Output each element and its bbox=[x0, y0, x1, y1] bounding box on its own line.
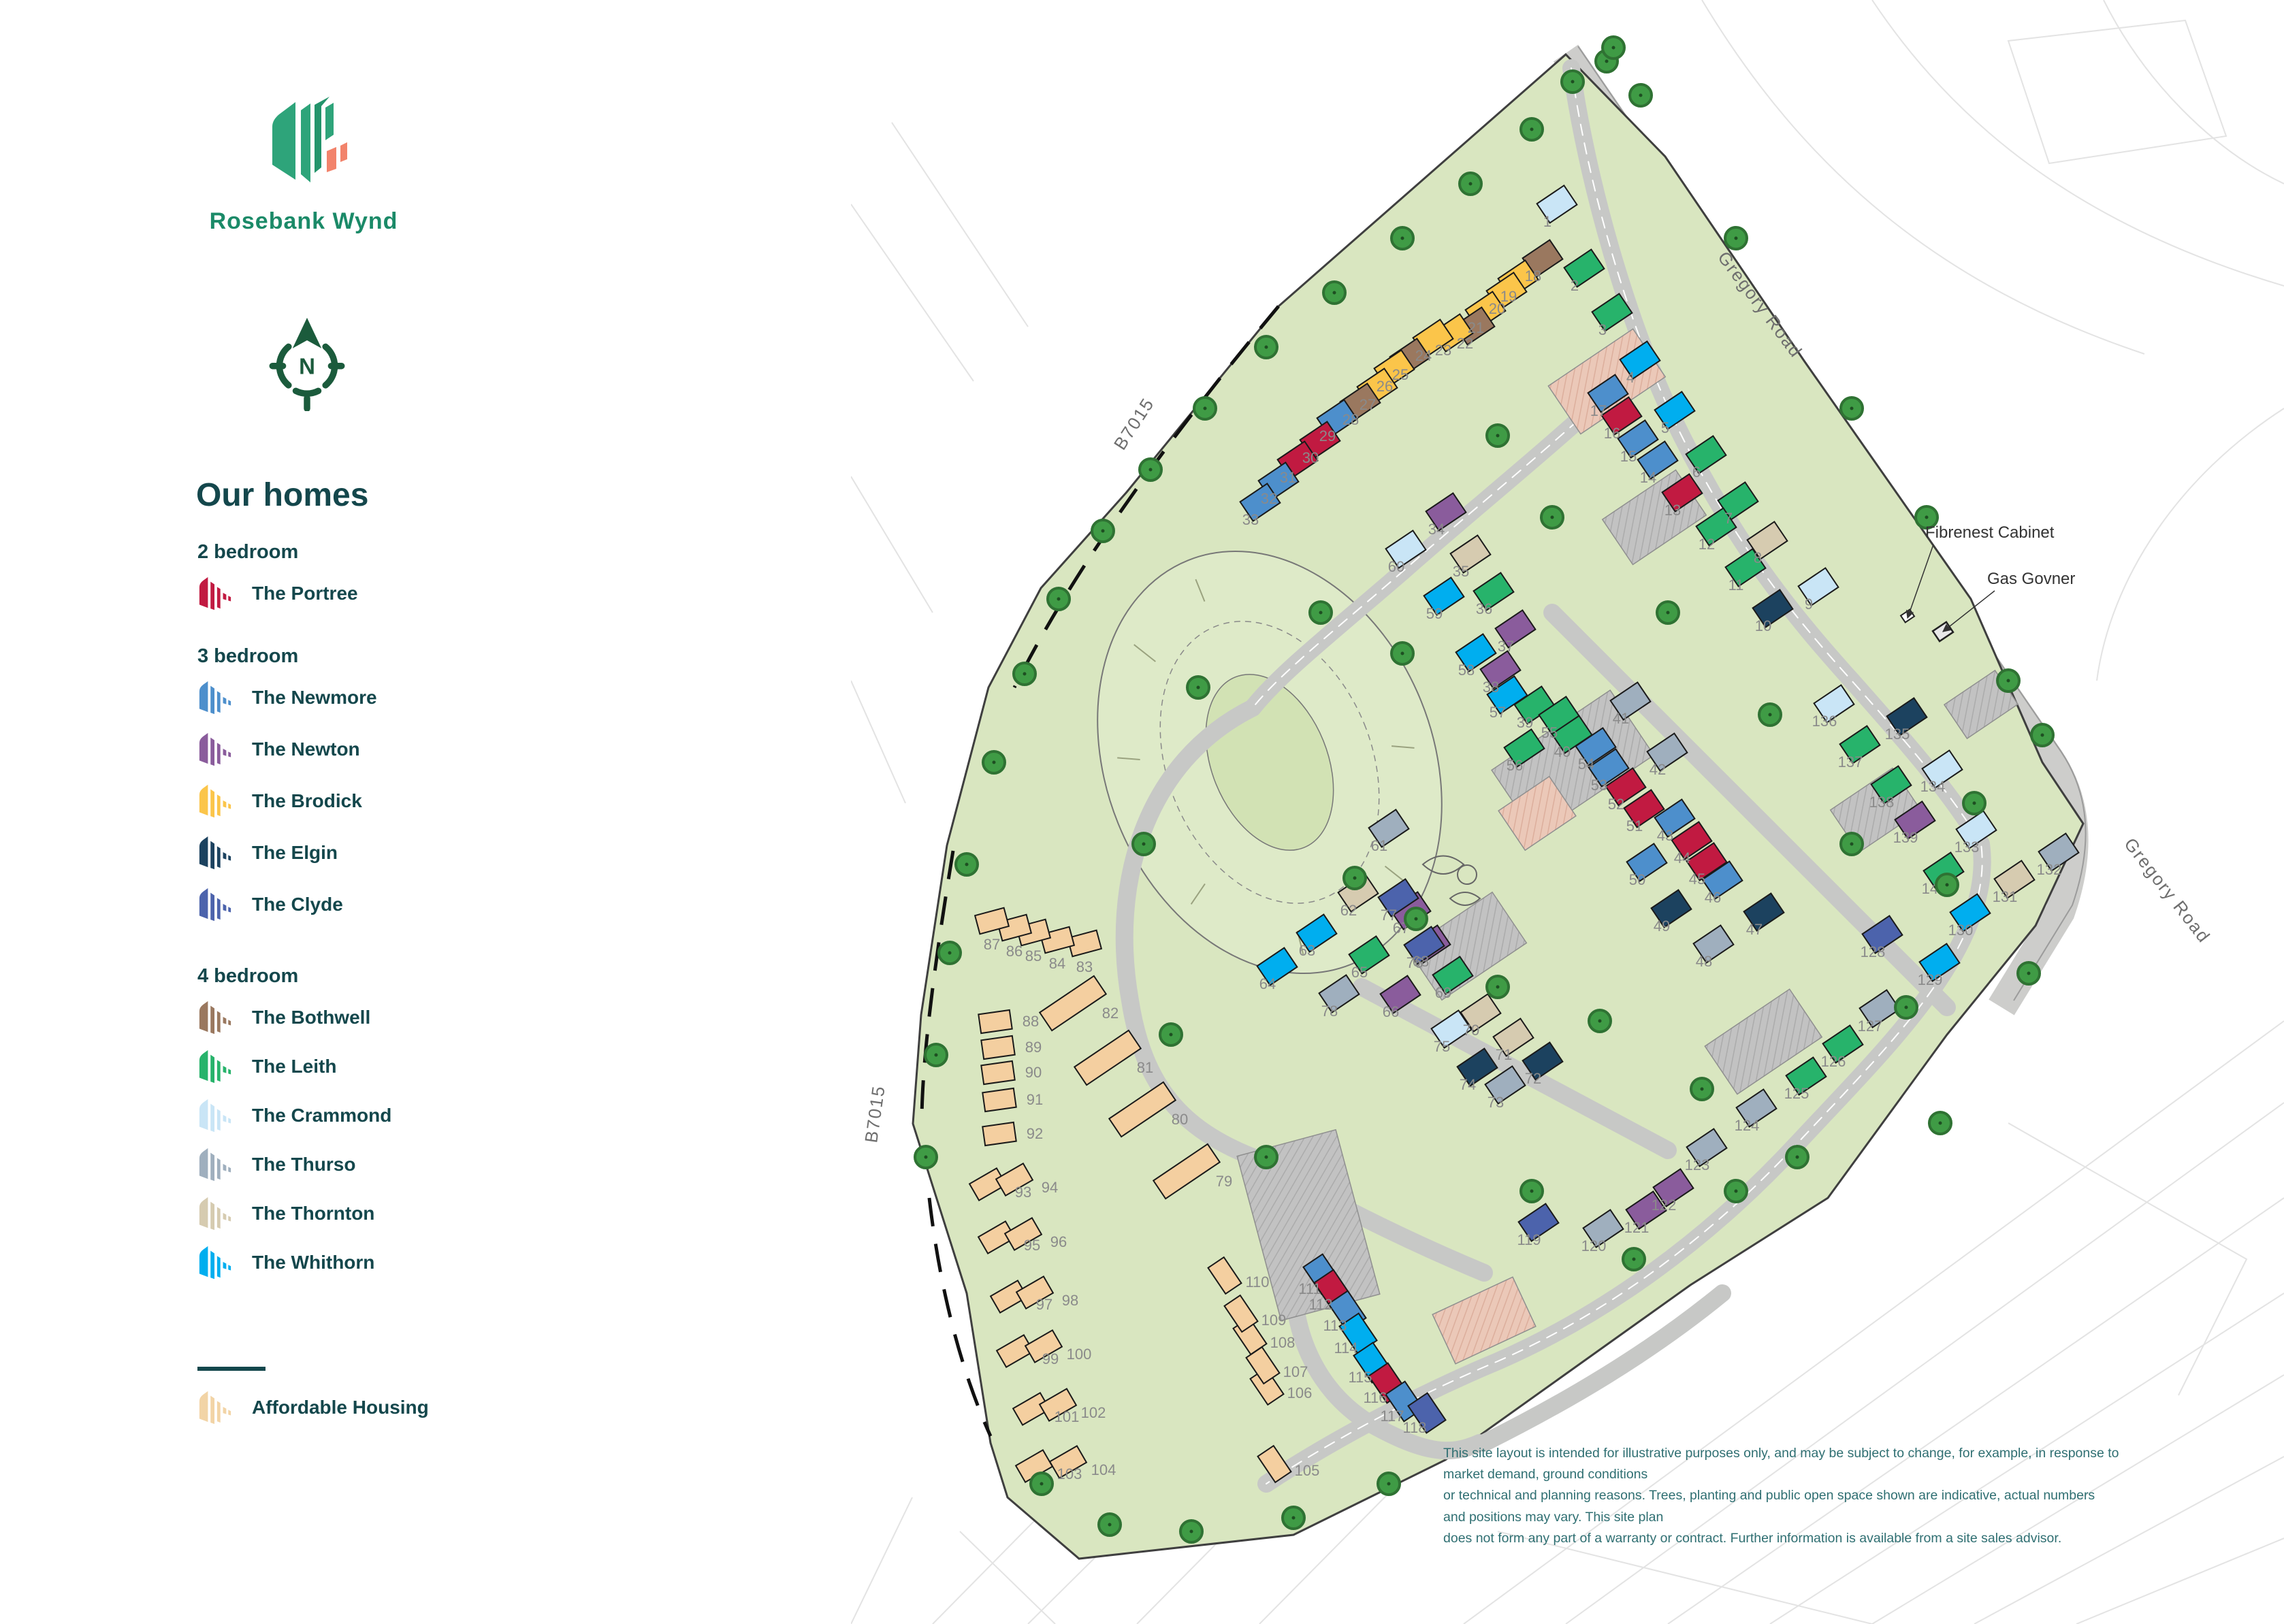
plot-number-75: 75 bbox=[1434, 1038, 1450, 1055]
disclaimer-line: or technical and planning reasons. Trees… bbox=[1443, 1485, 2121, 1527]
plot-number-117: 117 bbox=[1380, 1408, 1404, 1425]
tree-icon bbox=[1589, 1010, 1611, 1032]
plot-number-77: 77 bbox=[1381, 907, 1397, 924]
plot-number-66: 66 bbox=[1383, 1003, 1399, 1020]
legend-item-label: The Elgin bbox=[252, 842, 338, 864]
legend-item-label: The Thornton bbox=[252, 1203, 374, 1224]
road-label-b7015: B7015 bbox=[860, 1084, 889, 1144]
house-marker-plot-88[interactable] bbox=[978, 1010, 1012, 1033]
plot-number-39: 39 bbox=[1517, 714, 1533, 731]
plot-number-16: 16 bbox=[1604, 425, 1620, 442]
house-type-icon bbox=[197, 732, 233, 767]
plot-number-47: 47 bbox=[1746, 921, 1763, 938]
plot-number-43: 43 bbox=[1657, 827, 1673, 844]
house-type-icon bbox=[197, 1390, 233, 1425]
plot-number-110: 110 bbox=[1245, 1273, 1269, 1290]
legend-item-the-clyde: The Clyde bbox=[197, 887, 377, 922]
tree-icon bbox=[1936, 874, 1958, 896]
legend-item-the-bothwell: The Bothwell bbox=[197, 1000, 391, 1035]
bedroom-heading: 4 bedroom bbox=[197, 965, 391, 988]
plot-number-136: 136 bbox=[1812, 713, 1837, 730]
plot-number-9: 9 bbox=[1805, 596, 1813, 613]
road-label-b7015: B7015 bbox=[1110, 393, 1159, 453]
plot-number-109: 109 bbox=[1261, 1312, 1287, 1329]
plot-number-121: 121 bbox=[1624, 1219, 1650, 1236]
plot-number-98: 98 bbox=[1062, 1292, 1078, 1309]
plot-number-93: 93 bbox=[1015, 1184, 1031, 1201]
tree-icon bbox=[1521, 1180, 1543, 1202]
tree-icon bbox=[1541, 506, 1563, 528]
tree-icon bbox=[1405, 908, 1427, 930]
plot-number-22: 22 bbox=[1457, 335, 1473, 352]
plot-number-78: 78 bbox=[1321, 1003, 1338, 1020]
plot-number-86: 86 bbox=[1006, 943, 1023, 960]
tree-icon bbox=[1344, 867, 1366, 889]
plot-number-35: 35 bbox=[1453, 563, 1469, 580]
tree-icon bbox=[1099, 1514, 1121, 1536]
plot-number-37: 37 bbox=[1498, 638, 1514, 655]
plot-number-7: 7 bbox=[1724, 510, 1733, 527]
plot-number-33: 33 bbox=[1242, 511, 1259, 528]
legend-item-label: The Newmore bbox=[252, 687, 377, 709]
legend-item-the-newmore: The Newmore bbox=[197, 680, 377, 715]
house-type-icon bbox=[197, 576, 233, 611]
plot-number-114: 114 bbox=[1334, 1339, 1357, 1357]
plot-number-41: 41 bbox=[1613, 710, 1629, 727]
legend-item-the-crammond: The Crammond bbox=[197, 1098, 391, 1133]
plot-number-10: 10 bbox=[1755, 617, 1771, 634]
legend-item-label: Affordable Housing bbox=[252, 1397, 429, 1418]
plot-number-104: 104 bbox=[1091, 1461, 1116, 1478]
tree-icon bbox=[983, 751, 1005, 773]
legend-section-3-bedroom: 3 bedroom The NewmoreThe NewtonThe Brodi… bbox=[197, 645, 377, 922]
plot-number-60: 60 bbox=[1388, 558, 1404, 575]
tree-icon bbox=[1603, 37, 1624, 59]
plot-number-30: 30 bbox=[1302, 449, 1319, 466]
tree-icon bbox=[1487, 425, 1509, 446]
plot-number-1: 1 bbox=[1543, 213, 1551, 230]
legend-item-affordable-housing: Affordable Housing bbox=[197, 1390, 429, 1425]
legend-item-label: The Newton bbox=[252, 738, 360, 760]
brand-title: Rosebank Wynd bbox=[95, 208, 512, 235]
bedroom-heading: 2 bedroom bbox=[197, 541, 358, 564]
plot-number-26: 26 bbox=[1377, 378, 1393, 395]
compass-icon: N bbox=[267, 314, 347, 411]
tree-icon bbox=[1963, 792, 1985, 814]
bedroom-heading: 3 bedroom bbox=[197, 645, 377, 668]
plot-number-34: 34 bbox=[1428, 521, 1445, 538]
house-type-icon bbox=[197, 1000, 233, 1035]
plot-number-103: 103 bbox=[1057, 1465, 1082, 1482]
tree-icon bbox=[1283, 1507, 1304, 1529]
tree-icon bbox=[2018, 962, 2040, 984]
plot-number-83: 83 bbox=[1076, 958, 1093, 975]
plot-number-51: 51 bbox=[1626, 817, 1643, 834]
plot-number-29: 29 bbox=[1319, 427, 1336, 444]
legend-item-affordable-housing: Affordable Housing bbox=[197, 1390, 429, 1425]
plot-number-74: 74 bbox=[1460, 1076, 1476, 1093]
plot-number-112: 112 bbox=[1308, 1296, 1332, 1313]
plot-number-18: 18 bbox=[1525, 267, 1541, 285]
plot-number-95: 95 bbox=[1024, 1237, 1040, 1254]
plot-number-105: 105 bbox=[1295, 1462, 1320, 1479]
plot-number-84: 84 bbox=[1049, 955, 1065, 972]
plot-number-139: 139 bbox=[1893, 829, 1918, 846]
legend-item-label: The Crammond bbox=[252, 1105, 391, 1126]
plot-number-56: 56 bbox=[1507, 757, 1523, 774]
plot-number-131: 131 bbox=[1993, 888, 2018, 905]
tree-icon bbox=[1630, 84, 1652, 106]
plot-number-31: 31 bbox=[1280, 469, 1296, 486]
legend-item-label: The Brodick bbox=[252, 790, 362, 812]
plot-number-14: 14 bbox=[1640, 469, 1656, 486]
rosebank-logo-icon bbox=[267, 94, 347, 184]
tree-icon bbox=[1841, 833, 1863, 855]
house-type-icon bbox=[197, 887, 233, 922]
plot-number-101: 101 bbox=[1055, 1408, 1080, 1425]
house-marker-plot-89[interactable] bbox=[981, 1036, 1014, 1059]
site-plan-map[interactable]: 1234567891011121314151617181920212223242… bbox=[851, 0, 2284, 1624]
plot-number-76: 76 bbox=[1406, 954, 1423, 971]
plot-number-58: 58 bbox=[1458, 662, 1475, 679]
legend-section-2-bedroom: 2 bedroom The Portree bbox=[197, 541, 358, 611]
tree-icon bbox=[1048, 588, 1069, 610]
plot-number-8: 8 bbox=[1754, 549, 1762, 566]
tree-icon bbox=[1133, 833, 1155, 855]
tree-icon bbox=[1997, 670, 2019, 692]
tree-icon bbox=[1725, 1180, 1747, 1202]
house-type-icon bbox=[197, 1147, 233, 1182]
house-type-icon bbox=[197, 1098, 233, 1133]
house-type-icon bbox=[197, 1196, 233, 1231]
tree-icon bbox=[1487, 976, 1509, 998]
plot-number-132: 132 bbox=[2037, 861, 2062, 878]
plot-number-107: 107 bbox=[1283, 1363, 1308, 1380]
plot-number-50: 50 bbox=[1629, 871, 1645, 888]
tree-icon bbox=[1140, 459, 1161, 481]
tree-icon bbox=[1014, 663, 1035, 685]
legend-item-the-newton: The Newton bbox=[197, 732, 377, 767]
tree-icon bbox=[2031, 724, 2053, 746]
annotation-gas-govner: Gas Govner bbox=[1987, 570, 2075, 588]
tree-icon bbox=[1392, 643, 1413, 664]
legend-item-the-thurso: The Thurso bbox=[197, 1147, 391, 1182]
tree-icon bbox=[1623, 1248, 1645, 1270]
plot-number-25: 25 bbox=[1392, 366, 1409, 383]
disclaimer-line: This site layout is intended for illustr… bbox=[1443, 1443, 2121, 1485]
legend-item-the-brodick: The Brodick bbox=[197, 783, 377, 819]
plot-number-15: 15 bbox=[1620, 448, 1637, 465]
disclaimer-text: This site layout is intended for illustr… bbox=[1443, 1443, 2121, 1549]
plot-number-62: 62 bbox=[1340, 902, 1357, 919]
plot-number-130: 130 bbox=[1948, 922, 1974, 939]
plot-number-69: 69 bbox=[1435, 984, 1451, 1001]
legend-item-the-thornton: The Thornton bbox=[197, 1196, 391, 1231]
tree-icon bbox=[1725, 227, 1747, 249]
plot-number-45: 45 bbox=[1689, 871, 1705, 888]
house-type-icon bbox=[197, 1049, 233, 1084]
plot-number-135: 135 bbox=[1885, 726, 1910, 743]
house-type-icon bbox=[197, 783, 233, 819]
tree-icon bbox=[1160, 1024, 1182, 1045]
tree-icon bbox=[1031, 1473, 1052, 1495]
plot-number-133: 133 bbox=[1955, 839, 1980, 856]
tree-icon bbox=[1841, 397, 1863, 419]
tree-icon bbox=[1310, 602, 1332, 623]
plot-number-119: 119 bbox=[1517, 1231, 1541, 1248]
plot-number-106: 106 bbox=[1287, 1384, 1313, 1401]
plot-number-3: 3 bbox=[1598, 321, 1607, 338]
tree-icon bbox=[1759, 704, 1781, 726]
tree-icon bbox=[1180, 1521, 1202, 1542]
plot-number-42: 42 bbox=[1650, 761, 1666, 778]
plot-number-57: 57 bbox=[1490, 704, 1506, 721]
plot-number-94: 94 bbox=[1042, 1179, 1058, 1196]
legend-item-label: The Thurso bbox=[252, 1154, 355, 1175]
house-marker-plot-92[interactable] bbox=[982, 1122, 1016, 1146]
plot-number-28: 28 bbox=[1342, 411, 1359, 428]
legend-item-the-leith: The Leith bbox=[197, 1049, 391, 1084]
plot-number-6: 6 bbox=[1692, 464, 1701, 481]
plot-number-126: 126 bbox=[1821, 1053, 1846, 1070]
legend-item-label: The Bothwell bbox=[252, 1007, 370, 1028]
plot-number-81: 81 bbox=[1137, 1059, 1153, 1076]
plot-number-46: 46 bbox=[1705, 889, 1721, 906]
tree-icon bbox=[1562, 71, 1583, 93]
plot-number-138: 138 bbox=[1869, 794, 1895, 811]
house-type-icon bbox=[197, 835, 233, 871]
tree-icon bbox=[1691, 1078, 1713, 1100]
plot-number-12: 12 bbox=[1699, 536, 1715, 553]
plot-number-71: 71 bbox=[1496, 1046, 1512, 1063]
tree-icon bbox=[1521, 118, 1543, 140]
legend-item-the-portree: The Portree bbox=[197, 576, 358, 611]
plot-number-52: 52 bbox=[1608, 796, 1624, 813]
house-type-icon bbox=[197, 680, 233, 715]
plot-number-64: 64 bbox=[1259, 975, 1276, 992]
plot-number-118: 118 bbox=[1402, 1419, 1426, 1436]
tree-icon bbox=[1092, 520, 1114, 542]
plot-number-23: 23 bbox=[1435, 342, 1451, 359]
plot-number-113: 113 bbox=[1323, 1317, 1347, 1334]
plot-number-134: 134 bbox=[1920, 778, 1946, 795]
plot-number-100: 100 bbox=[1067, 1346, 1092, 1363]
tree-icon bbox=[1929, 1112, 1951, 1134]
plot-number-38: 38 bbox=[1483, 679, 1499, 696]
plot-number-90: 90 bbox=[1025, 1064, 1042, 1081]
plot-number-127: 127 bbox=[1858, 1018, 1883, 1035]
plot-number-92: 92 bbox=[1027, 1125, 1043, 1142]
tree-icon bbox=[1786, 1146, 1808, 1168]
tree-icon bbox=[1194, 397, 1216, 419]
plot-number-116: 116 bbox=[1363, 1389, 1387, 1406]
plot-number-53: 53 bbox=[1591, 777, 1607, 794]
plot-number-2: 2 bbox=[1571, 277, 1579, 294]
plot-number-125: 125 bbox=[1784, 1085, 1809, 1102]
plot-number-65: 65 bbox=[1351, 964, 1368, 981]
plot-number-73: 73 bbox=[1487, 1094, 1504, 1111]
tree-icon bbox=[915, 1146, 937, 1168]
plot-number-129: 129 bbox=[1918, 971, 1943, 988]
legend-item-the-elgin: The Elgin bbox=[197, 835, 377, 871]
compass-north-label: N bbox=[299, 354, 315, 379]
tree-icon bbox=[939, 942, 961, 964]
tree-icon bbox=[925, 1044, 947, 1066]
plot-number-115: 115 bbox=[1348, 1369, 1372, 1386]
plot-number-13: 13 bbox=[1664, 502, 1681, 519]
plot-number-54: 54 bbox=[1578, 756, 1594, 773]
plot-number-44: 44 bbox=[1674, 849, 1690, 866]
tree-icon bbox=[1392, 227, 1413, 249]
legend-title: Our homes bbox=[196, 476, 368, 514]
plot-number-55: 55 bbox=[1541, 724, 1558, 741]
tree-icon bbox=[1255, 1146, 1277, 1168]
plot-number-123: 123 bbox=[1685, 1156, 1710, 1173]
legend-divider bbox=[197, 1367, 266, 1371]
plot-number-88: 88 bbox=[1023, 1013, 1039, 1030]
plot-number-85: 85 bbox=[1025, 947, 1042, 964]
plot-number-89: 89 bbox=[1025, 1039, 1042, 1056]
legend-item-the-whithorn: The Whithorn bbox=[197, 1245, 391, 1280]
road-label-gregory-road: Gregory Road bbox=[2120, 834, 2215, 947]
legend-item-label: The Clyde bbox=[252, 894, 343, 915]
plot-number-99: 99 bbox=[1042, 1350, 1059, 1367]
tree-icon bbox=[1657, 602, 1679, 623]
plot-number-80: 80 bbox=[1172, 1111, 1188, 1128]
annotation-fibrenest-cabinet: Fibrenest Cabinet bbox=[1925, 523, 2055, 542]
plot-number-111: 111 bbox=[1298, 1280, 1321, 1297]
legend-item-label: The Whithorn bbox=[252, 1252, 374, 1273]
tree-icon bbox=[1460, 173, 1481, 195]
legend-item-label: The Portree bbox=[252, 583, 358, 604]
plot-number-11: 11 bbox=[1728, 576, 1744, 594]
plot-number-32: 32 bbox=[1261, 490, 1277, 507]
tree-icon bbox=[1323, 282, 1345, 304]
plot-number-21: 21 bbox=[1468, 319, 1484, 336]
plot-number-27: 27 bbox=[1360, 396, 1376, 413]
plot-number-70: 70 bbox=[1463, 1022, 1479, 1039]
plot-number-72: 72 bbox=[1525, 1070, 1541, 1087]
house-marker-plot-90[interactable] bbox=[981, 1061, 1014, 1084]
plot-number-59: 59 bbox=[1426, 605, 1443, 622]
plot-number-49: 49 bbox=[1654, 917, 1670, 935]
plot-number-124: 124 bbox=[1735, 1117, 1760, 1134]
plot-number-137: 137 bbox=[1838, 753, 1863, 770]
plot-number-20: 20 bbox=[1489, 300, 1505, 317]
plot-number-17: 17 bbox=[1590, 402, 1607, 419]
plot-number-108: 108 bbox=[1270, 1334, 1296, 1351]
tree-icon bbox=[1378, 1473, 1400, 1495]
plot-number-5: 5 bbox=[1661, 419, 1669, 436]
plot-number-128: 128 bbox=[1861, 943, 1886, 960]
plot-number-91: 91 bbox=[1027, 1091, 1043, 1108]
house-marker-plot-91[interactable] bbox=[982, 1088, 1016, 1111]
plot-number-96: 96 bbox=[1050, 1233, 1067, 1250]
plot-number-122: 122 bbox=[1652, 1197, 1677, 1214]
tree-icon bbox=[956, 854, 978, 875]
plot-number-40: 40 bbox=[1554, 743, 1571, 760]
plot-number-61: 61 bbox=[1371, 837, 1387, 854]
tree-icon bbox=[1895, 996, 1917, 1018]
disclaimer-line: does not form any part of a warranty or … bbox=[1443, 1528, 2121, 1549]
plot-number-4: 4 bbox=[1626, 369, 1635, 386]
plot-number-87: 87 bbox=[984, 936, 1000, 953]
tree-icon bbox=[1255, 336, 1277, 358]
plot-number-97: 97 bbox=[1036, 1296, 1052, 1313]
plot-number-36: 36 bbox=[1476, 600, 1492, 617]
plot-number-24: 24 bbox=[1415, 347, 1432, 364]
plot-number-63: 63 bbox=[1299, 942, 1315, 959]
legend-section-4-bedroom: 4 bedroom The BothwellThe LeithThe Cramm… bbox=[197, 965, 391, 1280]
plot-number-102: 102 bbox=[1081, 1404, 1106, 1421]
house-type-icon bbox=[197, 1245, 233, 1280]
tree-icon bbox=[1187, 677, 1209, 698]
plot-number-48: 48 bbox=[1696, 953, 1712, 970]
plot-number-79: 79 bbox=[1216, 1173, 1232, 1190]
plot-number-82: 82 bbox=[1102, 1005, 1119, 1022]
plot-number-120: 120 bbox=[1581, 1237, 1607, 1254]
legend-item-label: The Leith bbox=[252, 1056, 336, 1077]
